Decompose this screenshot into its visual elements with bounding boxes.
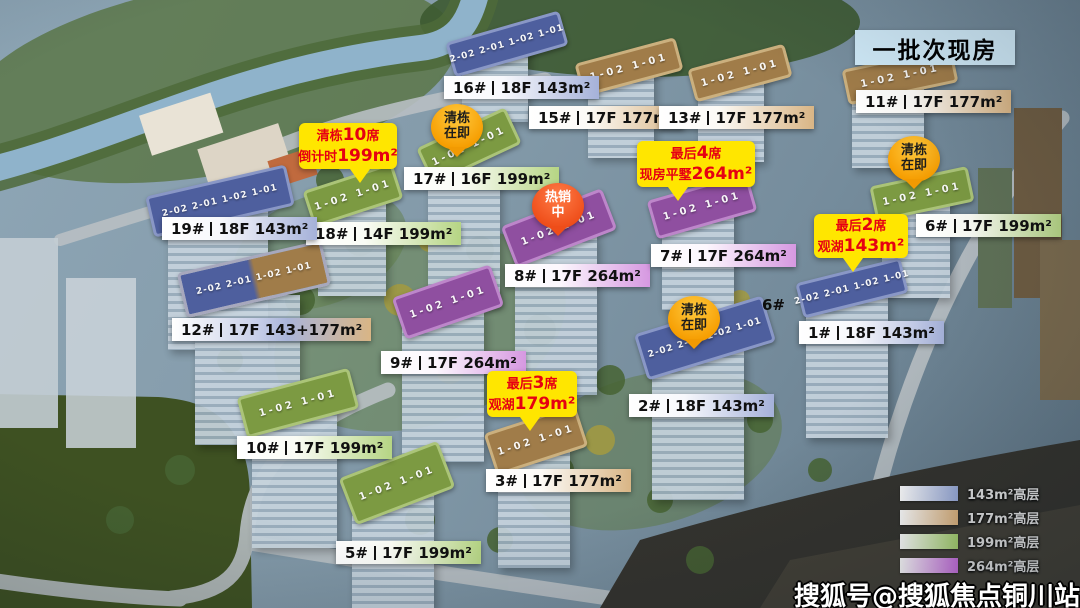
divider xyxy=(689,249,691,263)
building-spec: 17F 177m² xyxy=(532,472,622,490)
divider xyxy=(285,441,287,455)
building-spec: 18F 143m² xyxy=(675,397,765,415)
page-title: 一批次现房 xyxy=(855,30,1015,65)
divider xyxy=(904,95,906,109)
legend-item-199: 199m²高层 xyxy=(900,534,1039,549)
building-label-2: 2#18F 143m² xyxy=(629,394,774,417)
divider xyxy=(220,323,222,337)
legend-swatch-143 xyxy=(900,486,958,501)
building-number: 17# xyxy=(413,170,446,188)
divider xyxy=(492,81,494,95)
building-label-19: 19#18F 143m² xyxy=(162,217,317,240)
legend-swatch-264 xyxy=(900,558,958,573)
legend-item-177: 177m²高层 xyxy=(900,510,1039,525)
divider xyxy=(452,172,454,186)
building-spec: 18F 143m² xyxy=(218,220,308,238)
callout-last2-143: 最后2席 观湖143m² xyxy=(814,214,908,258)
building-number: 2# xyxy=(638,397,661,415)
divider xyxy=(667,399,669,413)
building-label-6: 6#17F 199m² xyxy=(916,214,1061,237)
site-plan-image: 2-02 2-01 1-02 1-01 1-02 1-01 1-02 1-01 … xyxy=(0,0,1080,608)
building-number: 7# xyxy=(660,247,683,265)
legend-swatch-177 xyxy=(900,510,958,525)
building-number: 18# xyxy=(315,225,348,243)
building-spec: 17F 177m² xyxy=(912,93,1002,111)
building-spec: 18F 143m² xyxy=(500,79,590,97)
divider xyxy=(210,222,212,236)
building-label-3: 3#17F 177m² xyxy=(486,469,631,492)
building-spec: 17F 264m² xyxy=(697,247,787,265)
building-label-1: 1#18F 143m² xyxy=(799,321,944,344)
legend-swatch-199 xyxy=(900,534,958,549)
divider xyxy=(374,546,376,560)
pin-clearing-soon-1: 清栋在即 xyxy=(431,104,483,150)
building-tower xyxy=(806,298,888,438)
pin-clearing-soon-3: 清栋在即 xyxy=(668,296,720,342)
building-number: 19# xyxy=(171,220,204,238)
building-spec: 17F 199m² xyxy=(382,544,472,562)
building-label-7: 7#17F 264m² xyxy=(651,244,796,267)
building-label-10: 10#17F 199m² xyxy=(237,436,392,459)
building-label-18: 18#14F 199m² xyxy=(306,222,461,245)
callout-last4-264: 最后4席 现房平墅264m² xyxy=(637,141,755,187)
building-number: 8# xyxy=(514,267,537,285)
legend: 143m²高层 177m²高层 199m²高层 264m²高层 xyxy=(900,486,1039,573)
divider xyxy=(577,111,579,125)
building-label-17: 17#16F 199m² xyxy=(404,167,559,190)
building-number: 15# xyxy=(538,109,571,127)
legend-item-264: 264m²高层 xyxy=(900,558,1039,573)
building-spec: 17F 199m² xyxy=(293,439,383,457)
callout-countdown-199: 清栋10席 倒计时199m² xyxy=(299,123,397,169)
legend-item-143: 143m²高层 xyxy=(900,486,1039,501)
building-number: 12# xyxy=(181,321,214,339)
divider xyxy=(419,356,421,370)
building-spec: 17F 199m² xyxy=(962,217,1052,235)
divider xyxy=(524,474,526,488)
building-number: 3# xyxy=(495,472,518,490)
divider xyxy=(954,219,956,233)
building-number: 11# xyxy=(865,93,898,111)
building-label-13: 13#17F 177m² xyxy=(659,106,814,129)
callout-last3-179: 最后3席 观湖179m² xyxy=(487,371,577,417)
building-label-5: 5#17F 199m² xyxy=(336,541,481,564)
building-spec: 17F 264m² xyxy=(427,354,517,372)
building-number: 6# xyxy=(925,217,948,235)
building-label-11: 11#17F 177m² xyxy=(856,90,1011,113)
building-label-8: 8#17F 264m² xyxy=(505,264,650,287)
building-spec: 14F 199m² xyxy=(362,225,452,243)
pin-hot-sale: 热销中 xyxy=(532,183,584,229)
divider xyxy=(837,326,839,340)
building-number: 10# xyxy=(246,439,279,457)
building-spec: 17F 264m² xyxy=(551,267,641,285)
divider xyxy=(543,269,545,283)
building-number: 5# xyxy=(345,544,368,562)
building-label-16: 16#18F 143m² xyxy=(444,76,599,99)
building-number: 9# xyxy=(390,354,413,372)
building-label-12: 12#17F 143+177m² xyxy=(172,318,371,341)
building-spec: 16F 199m² xyxy=(460,170,550,188)
building-number: 13# xyxy=(668,109,701,127)
building-note-6: 6# xyxy=(762,296,785,314)
building-number: 1# xyxy=(808,324,831,342)
building-number: 16# xyxy=(453,79,486,97)
building-spec: 17F 143+177m² xyxy=(228,321,362,339)
watermark: 搜狐号@搜狐焦点铜川站 xyxy=(794,576,1080,608)
building-spec: 17F 177m² xyxy=(715,109,805,127)
pin-clearing-soon-2: 清栋在即 xyxy=(888,136,940,182)
building-spec: 18F 143m² xyxy=(845,324,935,342)
divider xyxy=(707,111,709,125)
divider xyxy=(354,227,356,241)
